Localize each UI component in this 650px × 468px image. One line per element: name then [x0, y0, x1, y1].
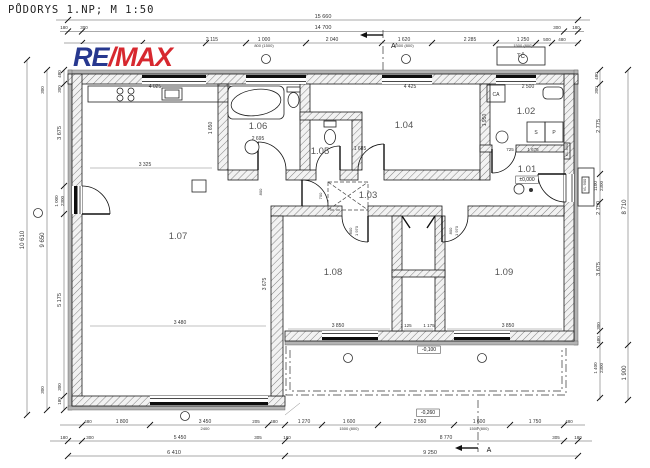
room-label: 1.08 [324, 267, 343, 278]
dim-text: 180 [60, 25, 68, 30]
dim-text: 480 [84, 419, 92, 424]
dim-text: 480 [57, 70, 62, 78]
room-label: 1.07 [169, 231, 188, 242]
door-garden [82, 186, 110, 214]
room-label: 1.02 [517, 106, 536, 117]
interior-dim-lines [90, 168, 562, 329]
dim-text: 2 695 [252, 136, 265, 142]
dim-text: 2300 [599, 362, 604, 373]
dim-text: 800 [258, 188, 263, 195]
dim-text: 305 [552, 435, 560, 440]
dim-text: 3 675 [596, 262, 602, 276]
terrace [285, 346, 566, 415]
dim-text: 3 675 [57, 126, 63, 140]
dim-text: 3 450 [199, 419, 212, 425]
dim-text: 4 025 [149, 84, 162, 90]
dim-text: 300 [57, 383, 62, 391]
toilet-wc [324, 121, 336, 145]
dim-text: 800 (1500) [254, 43, 274, 48]
window-room108-south [322, 331, 378, 341]
dim-text: 300 [86, 435, 94, 440]
dim-text: 300 [594, 86, 599, 94]
dim-text: 2300 [60, 195, 65, 206]
dim-text: 1500 (800) [513, 43, 533, 48]
dim-text: 3 675 [262, 278, 268, 291]
dim-text: 2 750 [596, 201, 602, 215]
dim-text: 180 [57, 397, 62, 405]
dim-text: 180 [574, 435, 582, 440]
dim-text: 1 750 [529, 419, 542, 425]
dim-text: 480 [558, 37, 566, 42]
dim-text: 725 [506, 147, 514, 152]
dim-text: 2400 [201, 426, 211, 431]
dim-text: 1 950 [482, 114, 488, 127]
dim-text: 2 040 [326, 37, 339, 43]
page-title: PŮDORYS 1.NP; M 1:50 [8, 3, 154, 16]
door-room102 [492, 149, 516, 173]
window-room104 [382, 74, 432, 84]
room-label: 1.06 [249, 121, 268, 132]
dim-text: 5 450 [174, 435, 187, 441]
floor-drain [496, 131, 533, 194]
window-living-south [150, 396, 268, 406]
dim-text: 800 [448, 227, 453, 234]
dim-text: 180 [60, 435, 68, 440]
dim-text: 1500 (800) [394, 43, 414, 48]
door-bathroom [258, 142, 286, 170]
bathtub [228, 86, 284, 119]
dim-text: 9 650 [40, 232, 46, 248]
section-marks [360, 30, 478, 452]
equipment-label: CA [493, 92, 501, 98]
dim-text: 3 480 [174, 320, 187, 326]
dim-text: 480 [596, 336, 601, 344]
equipment-label: S [534, 130, 538, 136]
dim-text: 3 325 [139, 162, 152, 168]
level-mark: -0,100 [422, 347, 436, 353]
utility-sink [543, 87, 563, 99]
dim-text: 1 800 [116, 419, 129, 425]
washbasin-bath [245, 140, 259, 154]
dim-text: 3 850 [332, 323, 345, 329]
dim-text: 4 425 [404, 84, 417, 90]
dim-text: 800 [348, 227, 353, 234]
dim-text: 500 [543, 37, 551, 42]
dim-text: 2 550 [414, 419, 427, 425]
room-label: 1.01 [518, 164, 537, 175]
window-kitchen [142, 74, 206, 84]
door-tag: VL 900 [582, 178, 587, 191]
dim-text: 180 [283, 435, 291, 440]
dim-text: 1 175 [423, 323, 435, 328]
dim-text: 480 [565, 419, 573, 424]
equipment-label: TČ [517, 53, 526, 60]
dim-text: 2 500 [522, 84, 535, 90]
dim-text: 1 970 [454, 225, 459, 236]
dim-text: 1 675 [527, 147, 539, 152]
dim-text: 3 850 [502, 323, 515, 329]
doors [82, 142, 566, 242]
dim-text: 480 [270, 419, 278, 424]
dim-text: 300 [80, 25, 88, 30]
dim-text: 700 [318, 192, 323, 199]
door-tag: KL 800 [564, 143, 569, 156]
windows [72, 74, 574, 406]
equipment-label: P [552, 130, 556, 136]
dim-text: 300 [596, 322, 601, 330]
dim-text: 300 [40, 86, 45, 94]
dim-text: 1100 [593, 181, 598, 191]
dim-text: 2 775 [596, 119, 602, 133]
dim-text: 2 285 [464, 37, 477, 43]
dim-text: 1 900 [622, 365, 628, 381]
dim-text: 1500 (800) [469, 426, 489, 431]
hall-cabinet [192, 180, 206, 192]
dim-text: 15 660 [315, 14, 332, 20]
room-label: 1.03 [359, 190, 378, 201]
garden-door-west [72, 186, 82, 214]
door-hall-west [302, 180, 328, 206]
entrance-opening-east [564, 174, 574, 202]
level-mark: ±0,000 [519, 177, 534, 183]
dim-text: 1 970 [354, 225, 359, 236]
dim-text: 300 [40, 386, 45, 394]
logo-re: RE [73, 42, 110, 72]
window-room102 [496, 74, 536, 84]
dim-text: 1 270 [298, 419, 311, 425]
dim-text: 5 175 [57, 293, 63, 307]
window-room109-south [454, 331, 510, 341]
dim-text: 305 [254, 435, 262, 440]
walls [68, 74, 578, 406]
dim-text: 14 700 [315, 25, 332, 31]
door-closet [402, 216, 435, 228]
dim-text: 1 685 [354, 146, 367, 152]
section-label: A [487, 447, 492, 454]
dim-text: 480 [594, 72, 599, 80]
door-entrance [538, 174, 566, 202]
dim-text: 1 600 [473, 419, 486, 425]
room-label: 1.09 [495, 267, 514, 278]
dim-text: 1 400 [593, 362, 598, 374]
room-label: 1.04 [395, 120, 414, 131]
floor-plan-drawing: PŮDORYS 1.NP; M 1:50 RE/MAX [0, 0, 650, 468]
dim-text: 300 [57, 85, 62, 93]
dim-text: 1 000 [54, 195, 59, 207]
dim-text: 205 [252, 419, 260, 424]
remax-logo: RE/MAX [73, 42, 175, 72]
toilet-bath [287, 87, 300, 108]
dim-text: 180 [572, 25, 580, 30]
section-label: A' [391, 43, 397, 50]
dim-text: 1 650 [208, 122, 214, 135]
dim-text: 8 770 [440, 435, 453, 441]
dim-text: 9 250 [423, 450, 437, 456]
level-mark: -0,260 [421, 410, 435, 416]
logo-max: MAX [115, 42, 175, 72]
dim-text: 2 115 [206, 37, 218, 43]
dim-text: 1 125 [400, 323, 412, 328]
dim-text: 2300 [599, 180, 604, 191]
dim-text: 8 710 [622, 199, 628, 215]
dim-text: 300 [553, 25, 561, 30]
room-label: 1.05 [311, 146, 330, 157]
dim-text: 10 610 [20, 230, 26, 249]
dim-text: 1500 (800) [339, 426, 359, 431]
dim-text: 6 410 [167, 450, 181, 456]
dim-text: 1 600 [343, 419, 356, 425]
window-bath [246, 74, 306, 84]
exterior-insulation [68, 70, 578, 410]
